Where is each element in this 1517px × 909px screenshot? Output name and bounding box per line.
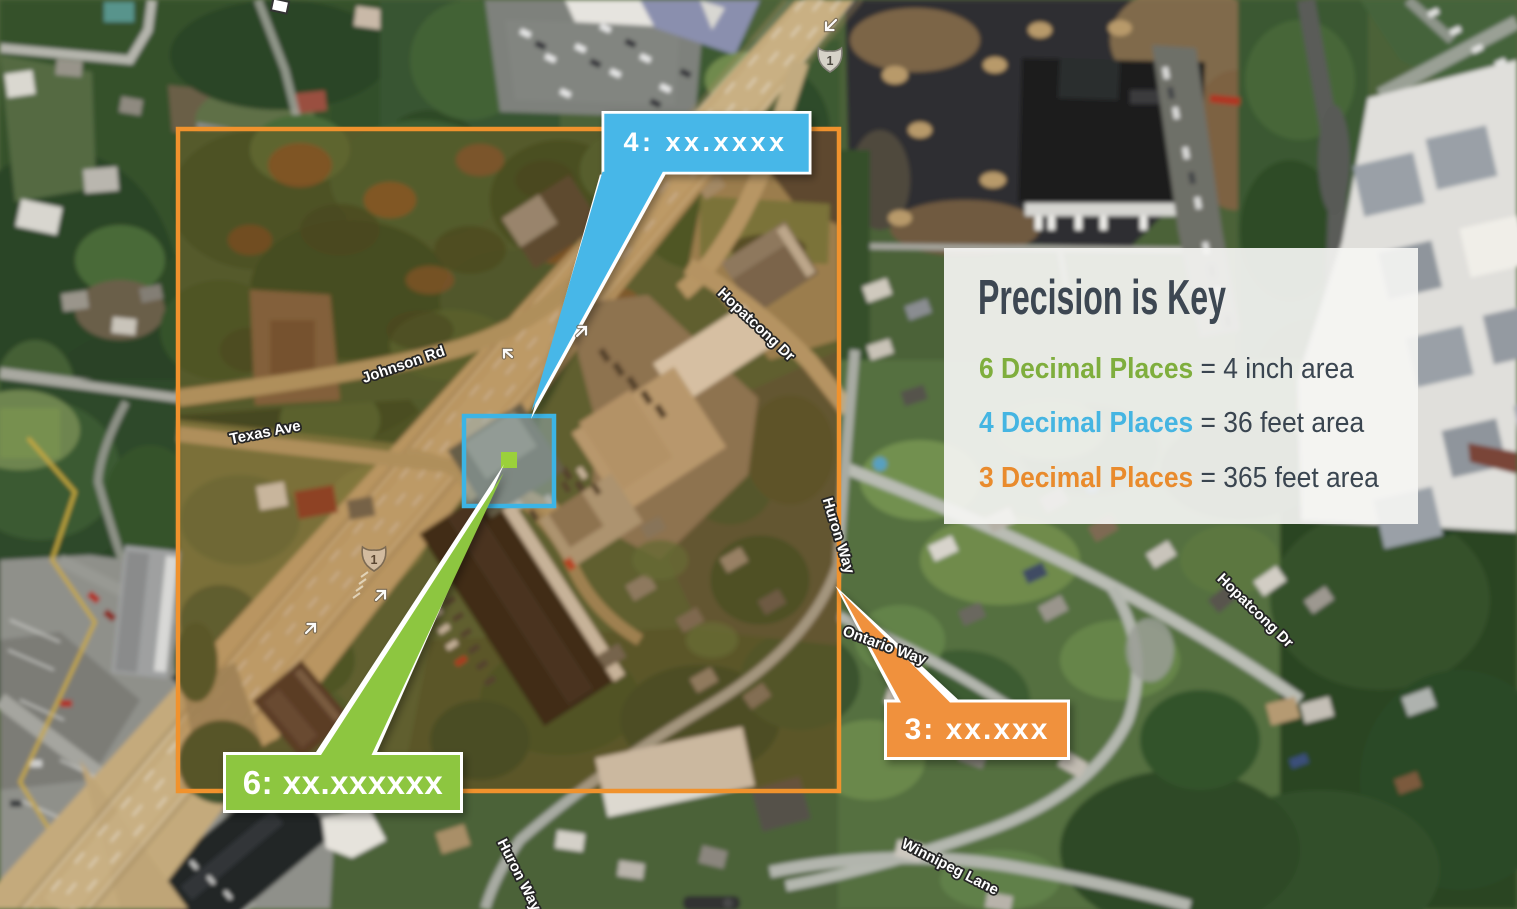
- svg-text:1: 1: [371, 553, 378, 567]
- svg-text:1: 1: [827, 54, 834, 68]
